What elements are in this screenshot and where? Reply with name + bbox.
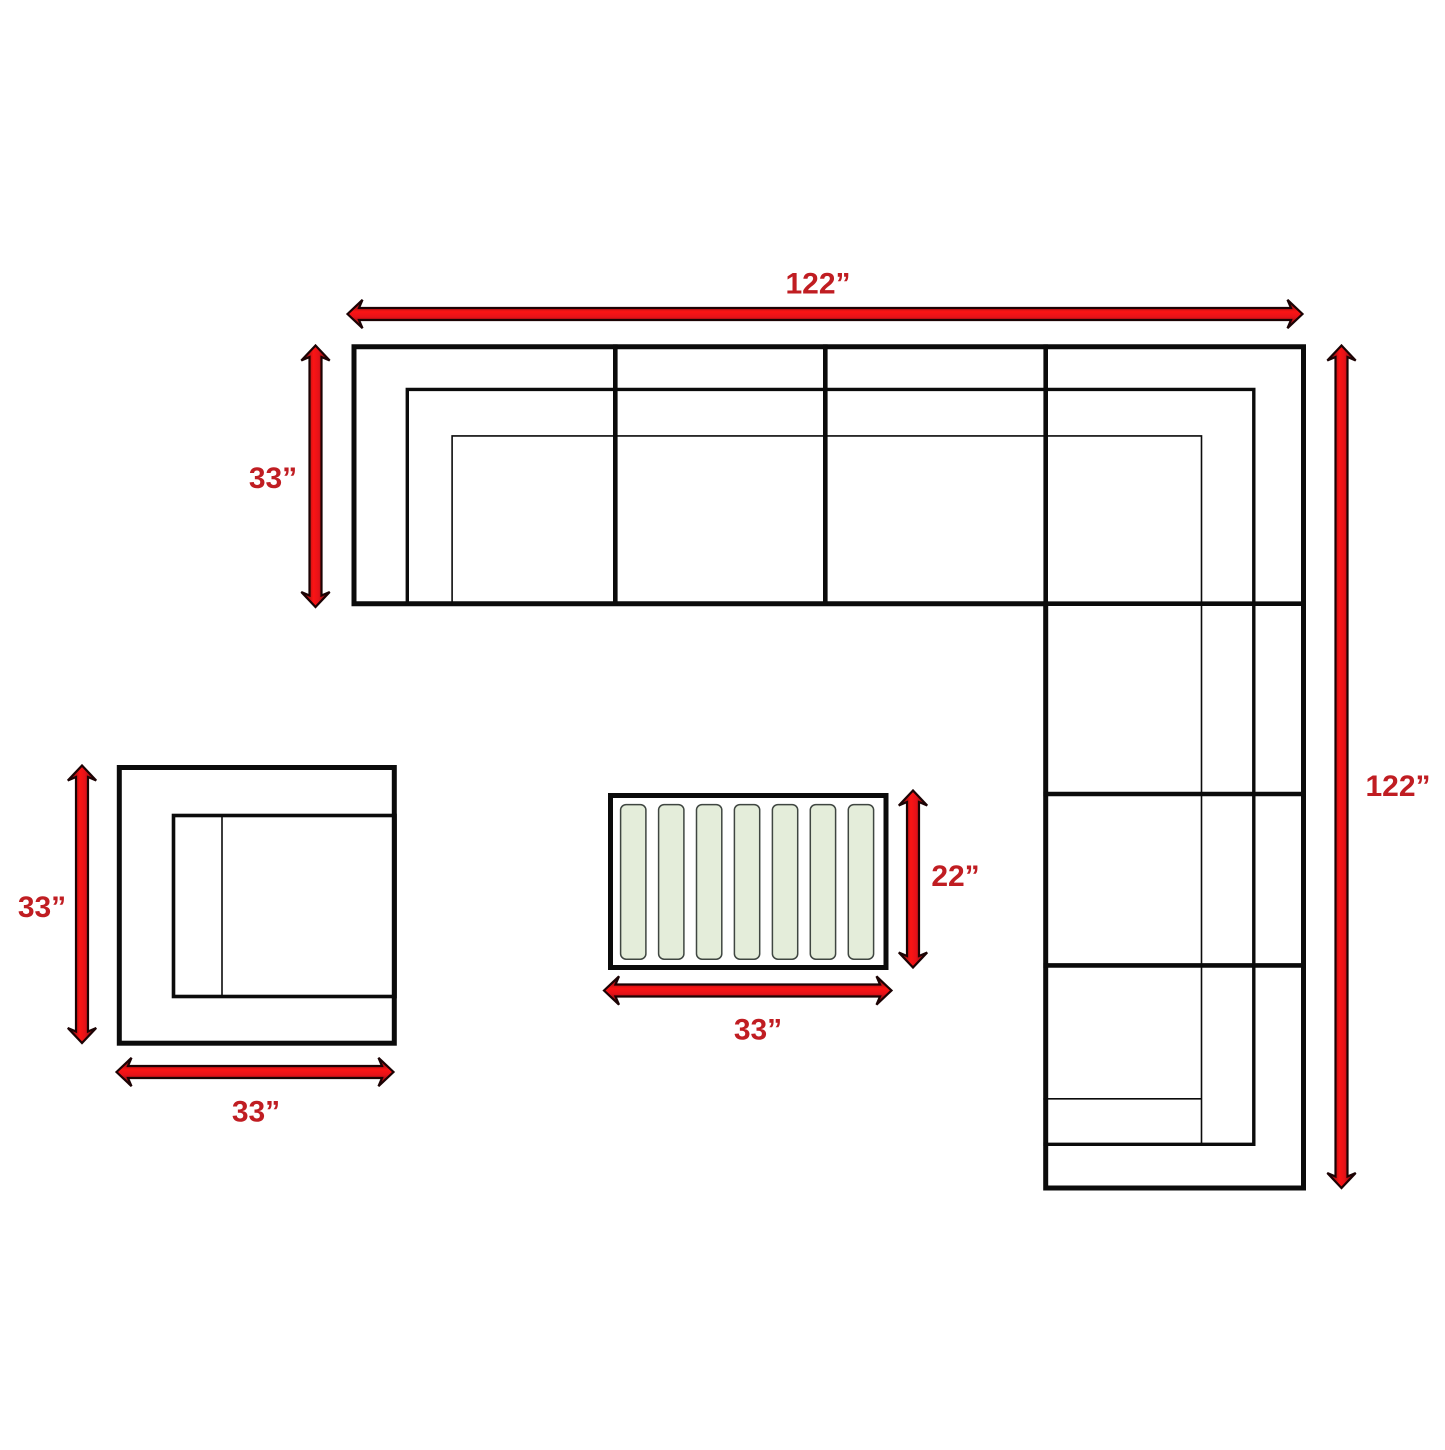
svg-text:22”: 22” (931, 860, 979, 893)
svg-text:33”: 33” (734, 1014, 782, 1047)
svg-text:122”: 122” (785, 268, 850, 301)
svg-text:33”: 33” (249, 462, 297, 495)
svg-text:33”: 33” (232, 1096, 280, 1129)
svg-text:33”: 33” (18, 891, 66, 924)
svg-text:122”: 122” (1365, 770, 1430, 803)
